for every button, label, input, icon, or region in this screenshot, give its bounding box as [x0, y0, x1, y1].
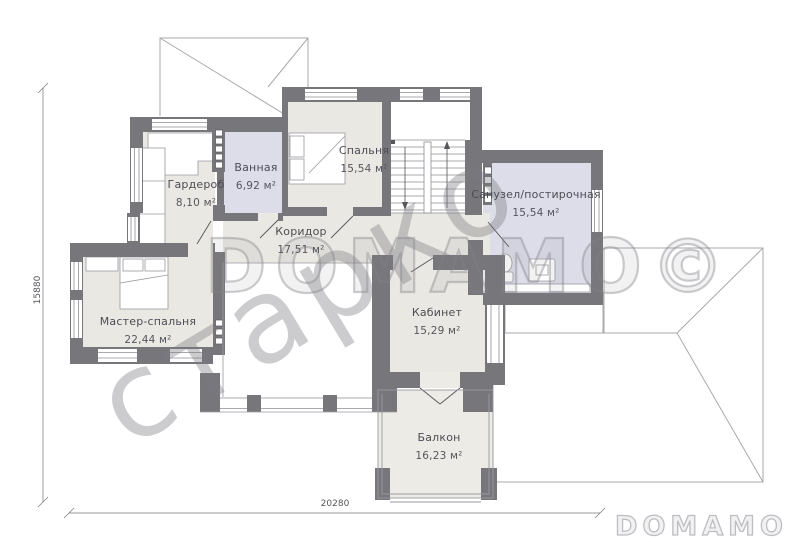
- room-label-kabinet: Кабинет 15,29 м²: [362, 306, 512, 338]
- room-name: Кабинет: [362, 306, 512, 320]
- wardrobe-row-icon: [86, 257, 118, 271]
- floor-plan-drawing: [0, 0, 800, 554]
- room-name: Коридор: [226, 225, 376, 239]
- room-label-master: Мастер-спальня 22,44 м²: [73, 315, 223, 347]
- room-area: 17,51 м²: [226, 243, 376, 257]
- room-label-balkon: Балкон 16,23 м²: [364, 431, 514, 463]
- room-name: Санузел/постирочная: [461, 188, 611, 202]
- domamo-logo: DOMAMO: [615, 511, 788, 542]
- room-name: Балкон: [364, 431, 514, 445]
- washing-machine-icon: [529, 259, 555, 281]
- room-name: Спальня: [289, 144, 439, 158]
- room-area: 15,54 м²: [289, 162, 439, 176]
- room-area: 16,23 м²: [364, 449, 514, 463]
- room-label-spalnya: Спальня 15,54 м²: [289, 144, 439, 176]
- room-area: 15,29 м²: [362, 324, 512, 338]
- room-name: Мастер-спальня: [73, 315, 223, 329]
- room-area: 6,92 м²: [181, 179, 331, 193]
- floor-plan-page: старко DOMAMO© Гардероб 8,10 м² Ванная 6…: [0, 0, 800, 554]
- dimension-label-vertical: 15880: [33, 265, 43, 315]
- bed-icon-master: [120, 257, 168, 309]
- dimension-label-horizontal: 20280: [295, 499, 375, 509]
- room-area: 8,10 м²: [121, 196, 271, 210]
- room-area: 15,54 м²: [461, 206, 611, 220]
- room-label-koridor: Коридор 17,51 м²: [226, 225, 376, 257]
- room-label-sanuzel: Санузел/постирочная 15,54 м²: [461, 188, 611, 220]
- room-area: 22,44 м²: [73, 333, 223, 347]
